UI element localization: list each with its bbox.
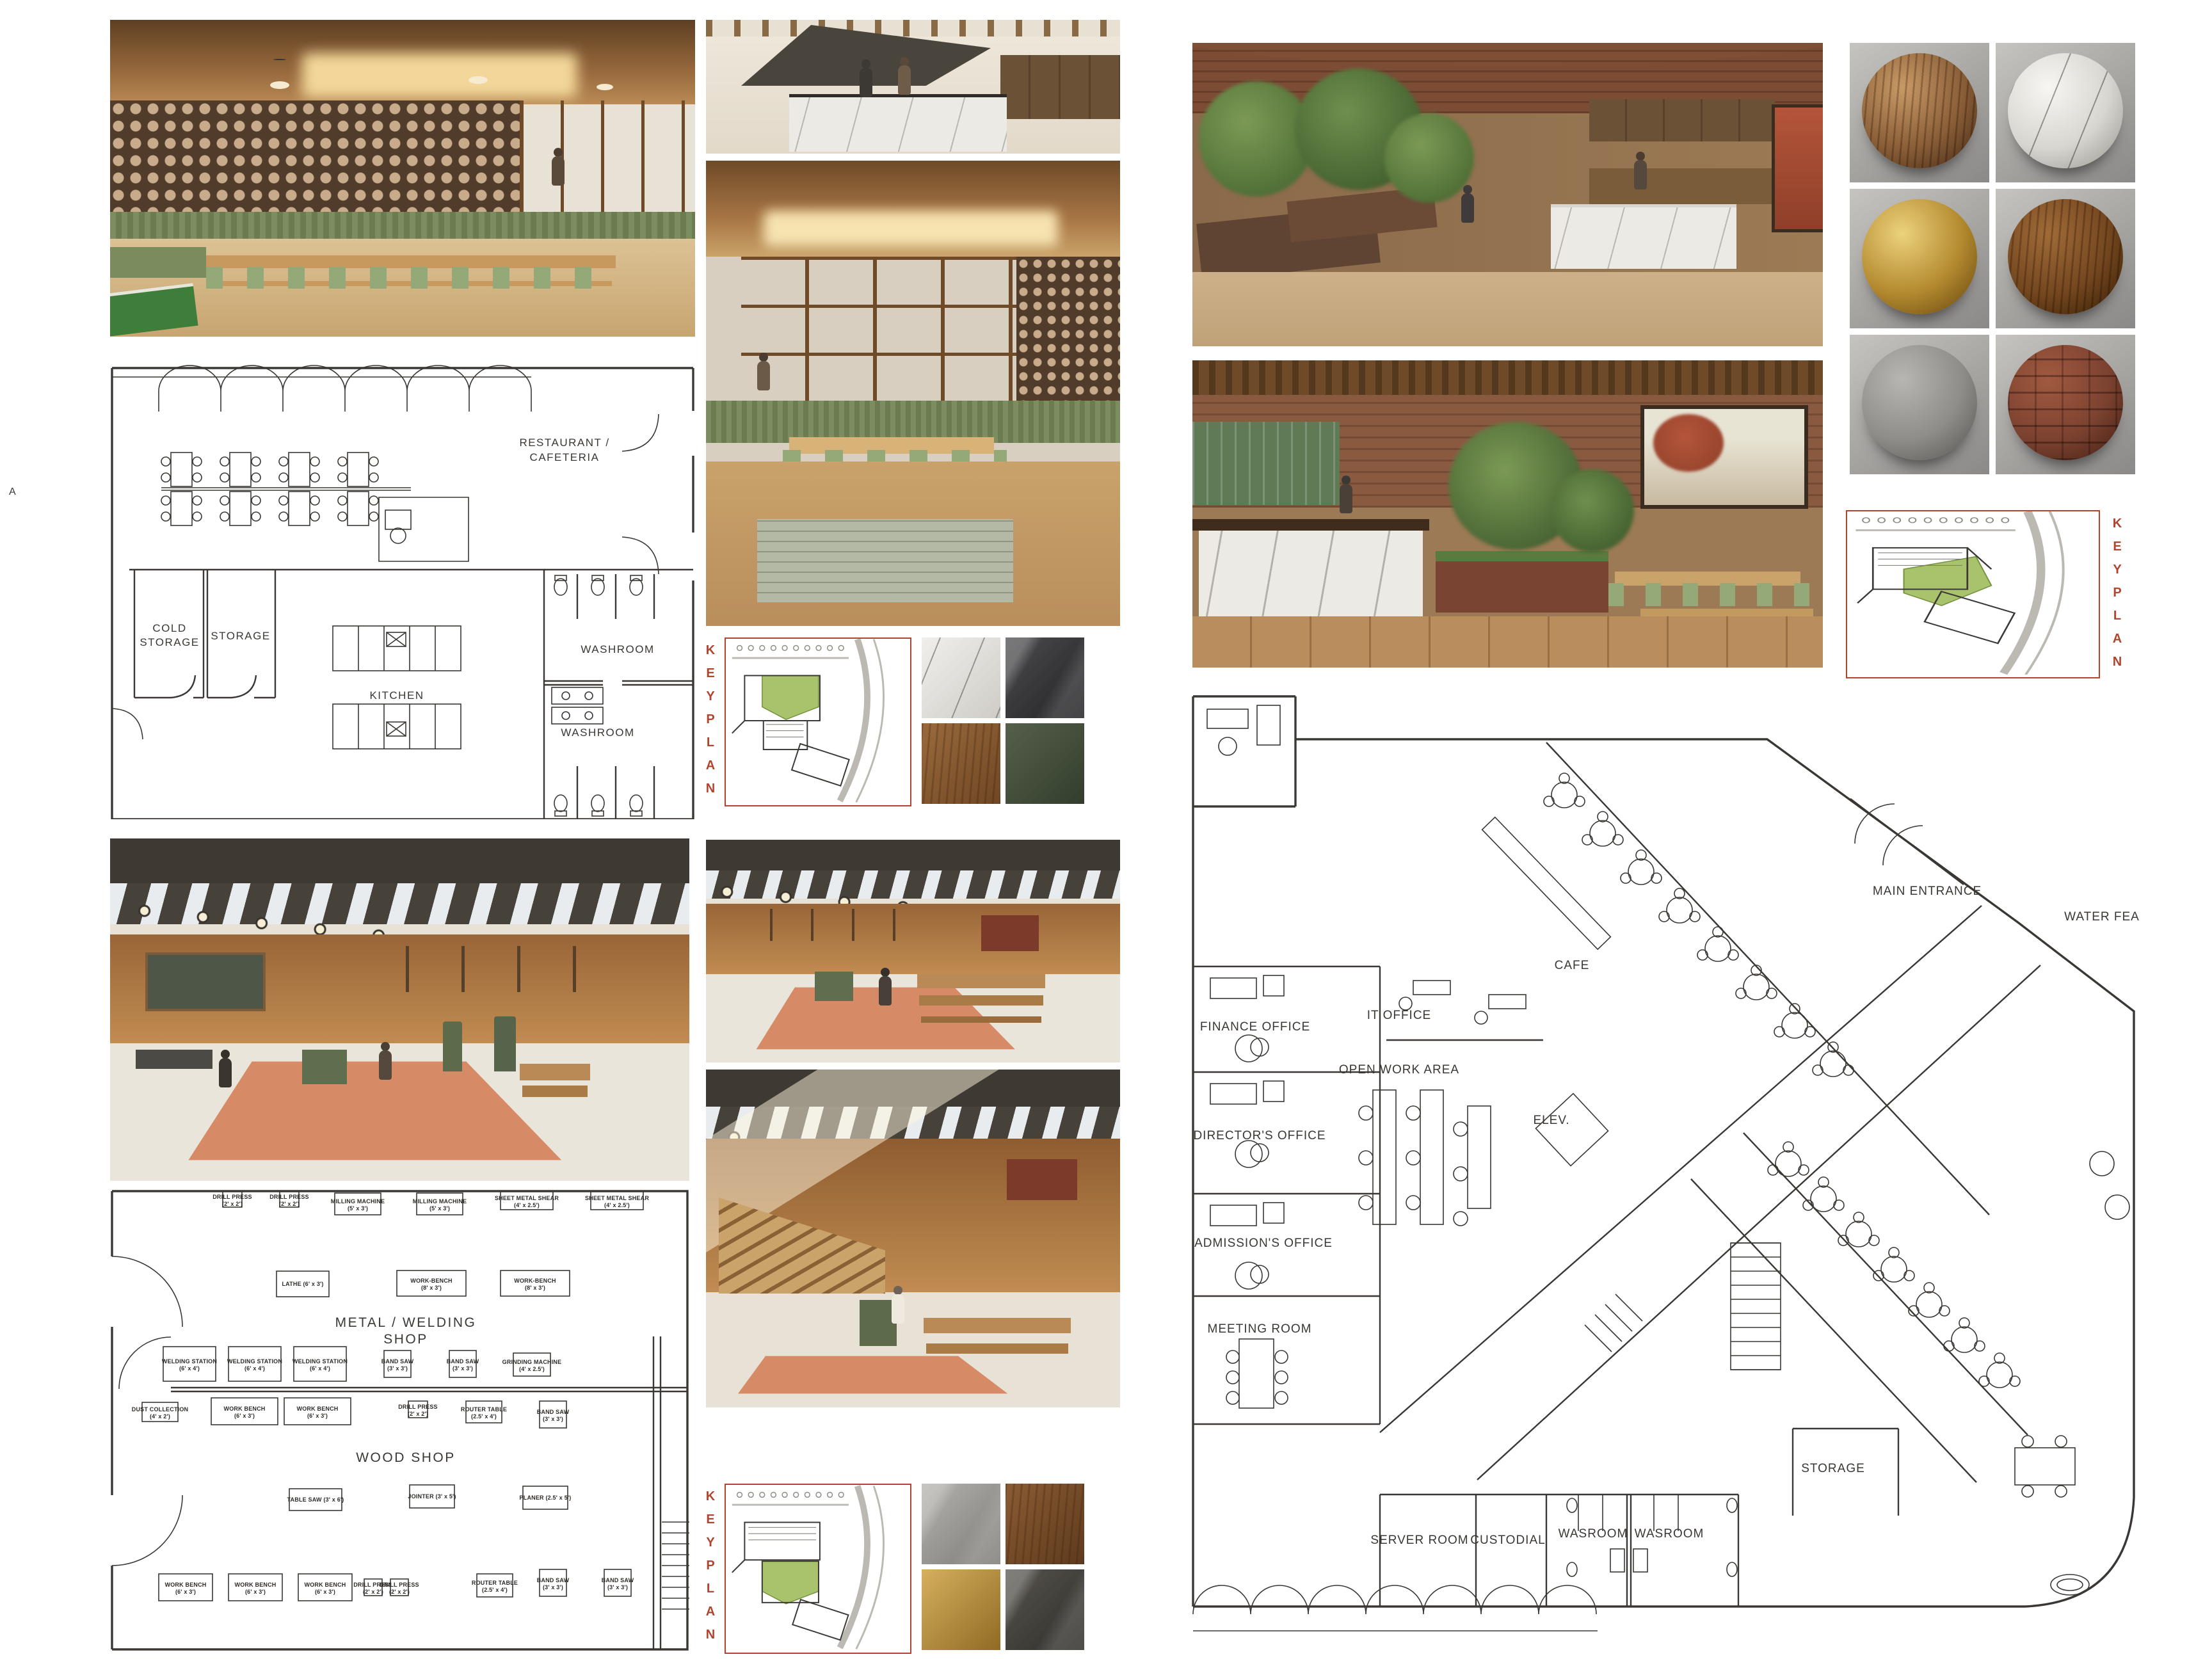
room-label: ELEV.	[1533, 1114, 1569, 1127]
brick-sphere	[2008, 345, 2123, 460]
charcoal-steel-tile	[1006, 637, 1084, 718]
render-lobby-bar	[1192, 360, 1823, 668]
equipment-label: (2' x 2')	[279, 1201, 300, 1207]
keyplan-vertical-label: K E Y P L A N	[703, 1485, 718, 1646]
equipment-label: WORK BENCH	[165, 1582, 207, 1588]
equipment-label: WORK-BENCH	[514, 1278, 556, 1284]
equipment-label: WORK BENCH	[297, 1406, 339, 1412]
equipment-label: DRILL PRESS	[380, 1582, 419, 1588]
marble-tile	[922, 637, 1000, 718]
room-label: CAFETERIA	[530, 451, 600, 463]
lower-cabinets	[1589, 168, 1775, 204]
room-label: FINANCE OFFICE	[1200, 1020, 1310, 1034]
keyplan-vertical-label: K E Y P L A N	[2110, 512, 2125, 673]
keyplan-main	[1846, 510, 2100, 678]
floorplan-restaurant: RESTAURANT / CAFETERIA COLD STORAGE STOR…	[110, 350, 695, 819]
pendant-lamp	[270, 81, 289, 89]
green-chairs-row	[1608, 583, 1813, 606]
bar-counter-top	[1192, 519, 1429, 531]
upper-cabinets	[1589, 99, 1775, 141]
brass-tile	[922, 1569, 1000, 1650]
equipment-label: MILLING MACHINE	[331, 1198, 385, 1205]
equipment-label: WORK BENCH	[305, 1582, 346, 1588]
shop-title: METAL / WELDING	[335, 1315, 477, 1330]
equipment-label: LATHE (6' x 3')	[282, 1281, 323, 1287]
room-label: MEETING ROOM	[1208, 1322, 1312, 1336]
equipment-label: (4' x 2.5')	[514, 1202, 540, 1208]
workbench	[917, 974, 1045, 988]
material-photo-tile	[1850, 335, 1989, 474]
presentation-board: A	[0, 0, 2212, 1659]
red-tree-blob	[1653, 414, 1724, 472]
graphite-tile	[1006, 1569, 1084, 1650]
equipment-label: (3' x 3')	[543, 1416, 563, 1422]
equipment-label: (4' x 2.5')	[604, 1202, 630, 1208]
booth-seat-left	[110, 247, 206, 278]
marble-island	[789, 94, 1007, 152]
render-kitchen-island	[706, 20, 1120, 154]
equipment-label: (5' x 3')	[348, 1205, 368, 1212]
stone-floor	[1192, 272, 1823, 346]
forest-green-tile	[1006, 723, 1084, 804]
room-label: KITCHEN	[369, 689, 424, 701]
keyplan-vertical-label: K E Y P L A N	[703, 639, 718, 800]
equipment-label: BAND SAW	[602, 1577, 634, 1583]
render-woodshop-benches	[706, 840, 1120, 1062]
equipment-label: DRILL PRESS	[398, 1404, 438, 1410]
room-label: WASHROOM	[561, 726, 634, 739]
room-label: DIRECTOR'S OFFICE	[1193, 1129, 1326, 1142]
shop-title: SHOP	[383, 1332, 428, 1347]
equipment-label: JOINTER (3' x 5')	[408, 1493, 456, 1500]
equipment-label: (6' x 3')	[234, 1413, 255, 1419]
equipment-label: (5' x 3')	[429, 1205, 450, 1212]
equipment-label: BAND SAW	[537, 1577, 570, 1583]
equipment-label: BAND SAW	[447, 1358, 479, 1365]
material-photo-tile	[1996, 335, 2135, 474]
equipment-label: TABLE SAW (3' x 6')	[287, 1496, 344, 1503]
room-label: STORAGE	[1801, 1462, 1865, 1475]
equipment-label: (6' x 4')	[310, 1365, 330, 1372]
shop-title: WOOD SHOP	[356, 1450, 456, 1465]
room-label: STORAGE	[211, 630, 270, 642]
room-label: IT OFFICE	[1367, 1009, 1431, 1022]
equipment-label: BAND SAW	[537, 1409, 570, 1415]
workbench	[924, 1318, 1071, 1333]
room-label: WATER FEA	[2064, 910, 2140, 924]
oak-sphere	[1862, 53, 1977, 168]
room-label: MAIN ENTRANCE	[1873, 885, 1982, 898]
pendant-lamp	[597, 84, 613, 90]
room-label: WASROOM	[1635, 1527, 1704, 1541]
keyplan-restaurant	[725, 637, 911, 806]
workbench	[520, 1064, 590, 1080]
truss-ceiling	[110, 838, 689, 883]
render-dining-hall	[110, 20, 695, 337]
metal-table	[136, 1050, 212, 1069]
circle-pattern-wall	[1016, 257, 1120, 424]
equipment-label: ROUTER TABLE	[472, 1580, 518, 1586]
equipment-label: (3' x 3')	[607, 1584, 628, 1591]
marble-counter	[1551, 204, 1736, 269]
equipment-label: WORK BENCH	[224, 1406, 266, 1412]
window-wall	[741, 257, 1016, 401]
red-panel	[981, 915, 1039, 951]
equipment-label: WORK-BENCH	[410, 1278, 453, 1284]
room-label: WASHROOM	[581, 643, 654, 655]
keyplan-workshop	[725, 1484, 911, 1654]
equipment-label: BAND SAW	[381, 1358, 414, 1365]
green-machine	[302, 1050, 347, 1084]
equipment-label: (6' x 3')	[315, 1589, 335, 1595]
ceiling-glow	[302, 53, 577, 98]
walnut-tile	[1006, 1484, 1084, 1564]
equipment-label: (6' x 4')	[244, 1365, 265, 1372]
equipment-label: GRINDING MACHINE	[502, 1359, 562, 1365]
green-bandsaw-machine	[443, 1022, 462, 1071]
equipment-label: (2' x 2')	[222, 1201, 243, 1207]
equipment-label: (8' x 3')	[421, 1285, 442, 1291]
marble-sphere	[2008, 53, 2123, 168]
materials-restaurant	[922, 637, 1084, 804]
render-window-dining	[706, 161, 1120, 626]
brushed-metal-tile	[922, 1484, 1000, 1564]
equipment-label: DRILL PRESS	[212, 1194, 252, 1200]
equipment-label: DRILL PRESS	[269, 1194, 309, 1200]
equipment-label: (4' x 2')	[150, 1413, 170, 1420]
equipment-label: (3' x 3')	[453, 1365, 473, 1372]
room-label: WASROOM	[1559, 1527, 1628, 1541]
equipment-label: (6' x 3')	[175, 1589, 196, 1595]
equipment-label: WELDING STATION	[227, 1358, 282, 1365]
render-lobby-cafe	[1192, 43, 1823, 346]
red-panel	[1007, 1159, 1077, 1200]
slat-ceiling	[1192, 360, 1823, 395]
material-sphere-grid	[1850, 43, 2135, 474]
wood-floor	[1192, 616, 1823, 668]
equipment-label: (3' x 3')	[543, 1584, 563, 1591]
room-label: CUSTODIAL	[1470, 1534, 1545, 1547]
room-label: SERVER ROOM	[1370, 1534, 1468, 1547]
concrete-sphere	[1862, 345, 1977, 460]
green-machine	[815, 972, 853, 1001]
back-cabinets	[1000, 55, 1120, 119]
gold-sphere	[1862, 199, 1977, 314]
window-red-foliage	[1772, 104, 1823, 232]
walnut-sphere	[2008, 199, 2123, 314]
room-label: COLD	[152, 622, 186, 634]
equipment-label: WELDING STATION	[162, 1358, 217, 1365]
wood-tile	[922, 723, 1000, 804]
equipment-label: (4' x 2.5')	[519, 1366, 545, 1372]
planter-island	[1436, 551, 1608, 613]
ceiling-glow	[764, 211, 1058, 246]
green-chairs-row	[206, 267, 616, 289]
tree-canopy	[1551, 469, 1634, 552]
marble-bar-front	[1199, 531, 1423, 620]
room-label: RESTAURANT /	[519, 437, 609, 449]
equipment-label: (2.5' x 4')	[471, 1413, 497, 1420]
green-tile-bar-back	[1192, 422, 1340, 505]
equipment-label: PLANER (2.5' x 5')	[520, 1495, 572, 1501]
equipment-label: (6' x 3')	[245, 1589, 266, 1595]
equipment-label: (2.5' x 4')	[482, 1587, 508, 1593]
materials-workshop	[922, 1484, 1084, 1650]
clerestory-window	[353, 946, 629, 992]
material-photo-tile	[1850, 189, 1989, 328]
equipment-label: (6' x 3')	[307, 1413, 328, 1419]
green-bandsaw-machine	[494, 1016, 516, 1071]
cropped-room-label: A	[9, 486, 17, 498]
truss-ceiling	[706, 840, 1120, 870]
tree-canopy	[1384, 113, 1474, 203]
chalkboard	[145, 952, 266, 1011]
room-label: OPEN WORK AREA	[1339, 1063, 1459, 1077]
equipment-label: (6' x 4')	[179, 1365, 200, 1372]
equipment-label: WORK BENCH	[235, 1582, 276, 1588]
equipment-label: (8' x 3')	[525, 1285, 545, 1291]
rug	[757, 519, 1013, 602]
equipment-label: SHEET METAL SHEAR	[495, 1195, 559, 1201]
equipment-label: DUST COLLECTION	[132, 1406, 189, 1413]
equipment-label: (2' x 2')	[389, 1589, 410, 1595]
equipment-label: WELDING STATION	[293, 1358, 348, 1365]
render-woodshop-stairs	[706, 1070, 1120, 1407]
equipment-label: SHEET METAL SHEAR	[585, 1195, 649, 1201]
equipment-label: ROUTER TABLE	[461, 1406, 507, 1413]
equipment-label: (3' x 3')	[387, 1365, 408, 1372]
equipment-label: (2' x 2')	[408, 1411, 428, 1417]
equipment-label: (2' x 2')	[363, 1589, 383, 1595]
material-photo-tile	[1850, 43, 1989, 182]
ceiling-beams	[706, 20, 1120, 36]
material-photo-tile	[1996, 189, 2135, 328]
room-label: ADMISSION'S OFFICE	[1194, 1237, 1333, 1250]
dining-table-row	[206, 255, 616, 268]
render-woodshop-main	[110, 838, 689, 1181]
material-photo-tile	[1996, 43, 2135, 182]
floorplan-workshop: DRILL PRESS(2' x 2')DRILL PRESS(2' x 2')…	[110, 1189, 689, 1651]
clerestory-window	[732, 909, 904, 941]
room-label: CAFE	[1555, 959, 1590, 972]
floorplan-main: MAIN ENTRANCEWATER FEACAFEIT OFFICEFINAN…	[1188, 691, 2142, 1651]
equipment-label: MILLING MACHINE	[413, 1198, 467, 1205]
room-label: STORAGE	[140, 636, 199, 648]
pendant-lamp	[469, 76, 488, 84]
